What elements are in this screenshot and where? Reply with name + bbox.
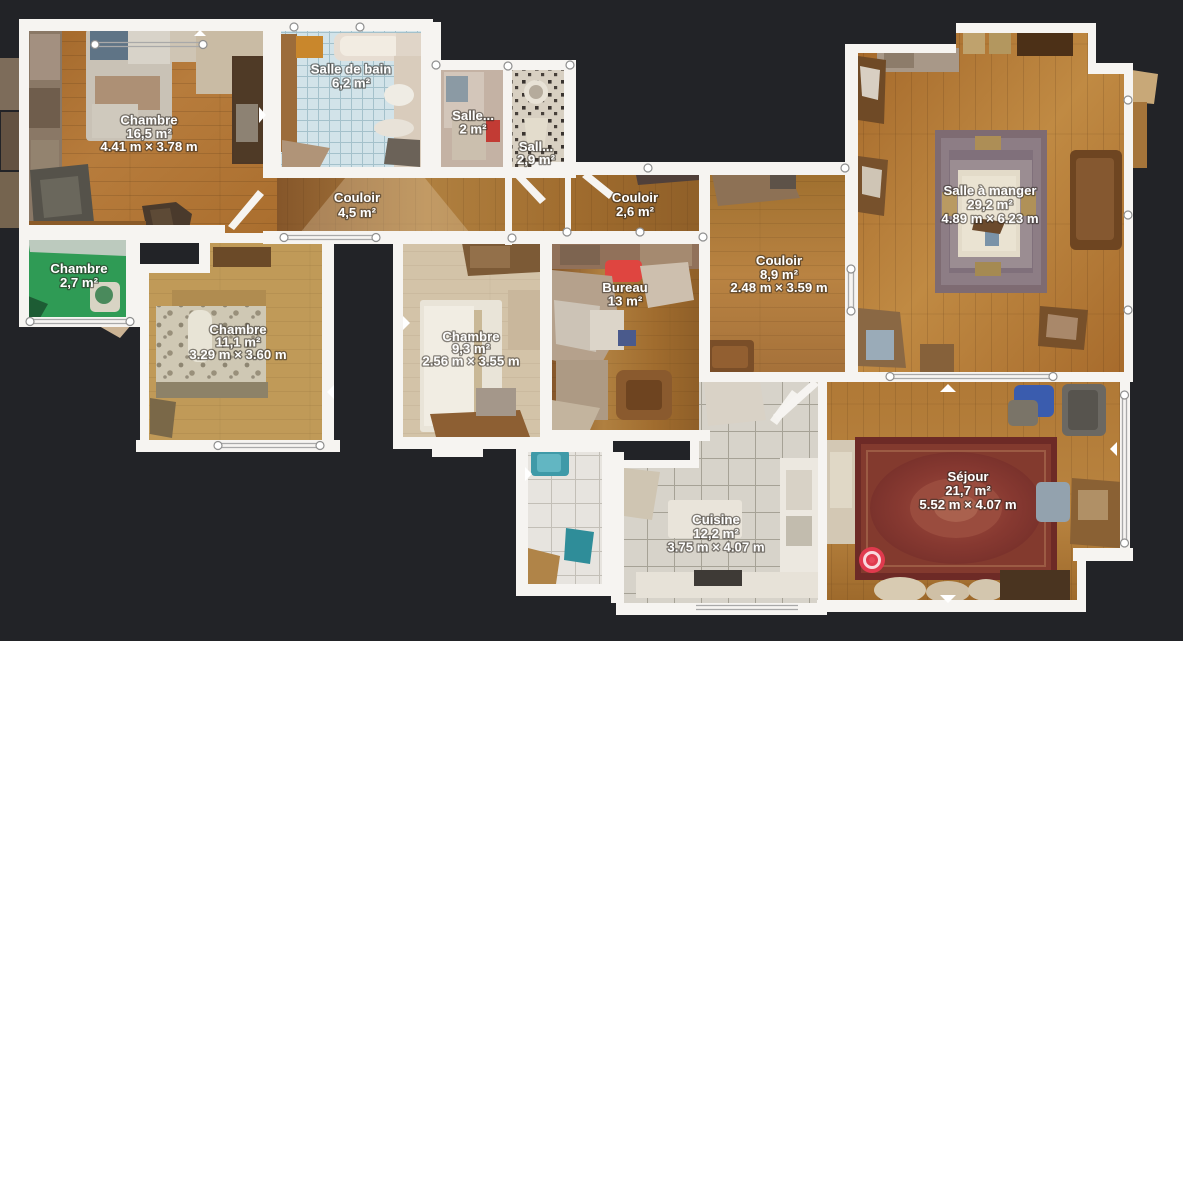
svg-text:4.89 m × 6.23 m: 4.89 m × 6.23 m [941,211,1038,226]
svg-text:29,2 m²: 29,2 m² [967,197,1013,212]
svg-text:13 m²: 13 m² [608,294,643,309]
svg-text:6,2 m²: 6,2 m² [332,76,371,91]
svg-text:2,7 m²: 2,7 m² [60,275,99,290]
svg-text:Couloir: Couloir [756,253,802,268]
svg-text:2.48 m × 3.59 m: 2.48 m × 3.59 m [730,280,827,295]
svg-text:Couloir: Couloir [612,190,658,205]
svg-text:Salle à manger: Salle à manger [943,183,1036,198]
svg-text:Chambre: Chambre [50,261,107,276]
svg-text:Cuisine: Cuisine [692,512,740,527]
svg-text:5.52 m × 4.07 m: 5.52 m × 4.07 m [919,497,1016,512]
svg-text:2,9 m²: 2,9 m² [517,152,556,167]
svg-text:21,7 m²: 21,7 m² [945,483,991,498]
svg-text:Salle de bain: Salle de bain [311,62,392,77]
svg-text:2,6 m²: 2,6 m² [616,204,655,219]
svg-text:4,5 m²: 4,5 m² [338,205,377,220]
svg-text:Couloir: Couloir [334,190,380,205]
svg-text:3.75 m × 4.07 m: 3.75 m × 4.07 m [667,540,764,555]
svg-text:Séjour: Séjour [947,469,988,484]
svg-text:2.56 m × 3.55 m: 2.56 m × 3.55 m [422,354,519,369]
svg-text:3.29 m × 3.60 m: 3.29 m × 3.60 m [189,347,286,362]
svg-text:2 m²: 2 m² [459,122,487,137]
svg-text:4.41 m × 3.78 m: 4.41 m × 3.78 m [100,139,197,154]
